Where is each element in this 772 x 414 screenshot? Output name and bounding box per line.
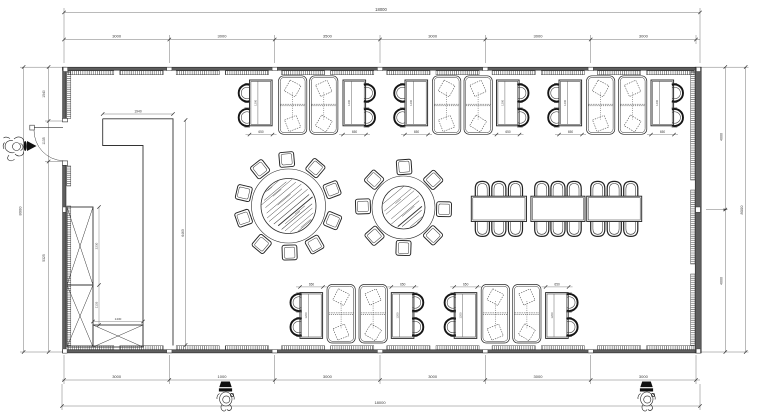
svg-text:650: 650	[463, 282, 469, 286]
svg-text:1430: 1430	[115, 317, 122, 321]
svg-text:3000: 3000	[112, 374, 122, 379]
svg-text:18000: 18000	[374, 400, 386, 405]
svg-text:1200: 1200	[458, 312, 462, 318]
svg-text:1200: 1200	[655, 99, 659, 105]
svg-text:1540: 1540	[42, 90, 46, 98]
svg-text:1200: 1200	[347, 99, 351, 105]
svg-text:2230: 2230	[94, 242, 98, 249]
svg-text:5325: 5325	[42, 254, 46, 262]
svg-text:3000: 3000	[428, 374, 438, 379]
svg-text:4000: 4000	[720, 133, 724, 141]
svg-text:1200: 1200	[254, 99, 258, 105]
svg-text:3000: 3000	[639, 374, 649, 379]
svg-text:1200: 1200	[501, 99, 505, 105]
svg-text:4000: 4000	[720, 277, 724, 285]
svg-text:650: 650	[414, 130, 420, 134]
svg-text:1200: 1200	[395, 312, 399, 318]
svg-text:650: 650	[660, 130, 666, 134]
svg-text:3000: 3000	[218, 33, 228, 38]
svg-text:3000: 3000	[534, 33, 544, 38]
svg-text:1200: 1200	[550, 312, 554, 318]
svg-text:1135: 1135	[94, 301, 98, 308]
svg-text:3500: 3500	[323, 33, 333, 38]
svg-text:1200: 1200	[563, 99, 567, 105]
svg-text:1135: 1135	[42, 137, 46, 144]
svg-text:8000: 8000	[739, 205, 744, 215]
svg-text:650: 650	[568, 130, 574, 134]
svg-text:650: 650	[400, 282, 406, 286]
svg-text:3000: 3000	[112, 33, 122, 38]
svg-text:650: 650	[554, 282, 560, 286]
svg-text:3000: 3000	[323, 374, 333, 379]
svg-text:8000: 8000	[18, 206, 23, 216]
svg-text:6460: 6460	[181, 229, 185, 237]
svg-text:3000: 3000	[534, 374, 544, 379]
svg-text:1200: 1200	[409, 99, 413, 105]
svg-text:1000: 1000	[218, 374, 228, 379]
svg-text:650: 650	[352, 130, 358, 134]
svg-text:650: 650	[309, 282, 315, 286]
svg-text:650: 650	[258, 130, 264, 134]
svg-text:1940: 1940	[134, 109, 142, 113]
svg-text:3000: 3000	[639, 33, 649, 38]
svg-text:3000: 3000	[428, 33, 438, 38]
svg-text:18000: 18000	[375, 7, 387, 12]
svg-text:1200: 1200	[304, 312, 308, 318]
svg-text:650: 650	[505, 130, 511, 134]
